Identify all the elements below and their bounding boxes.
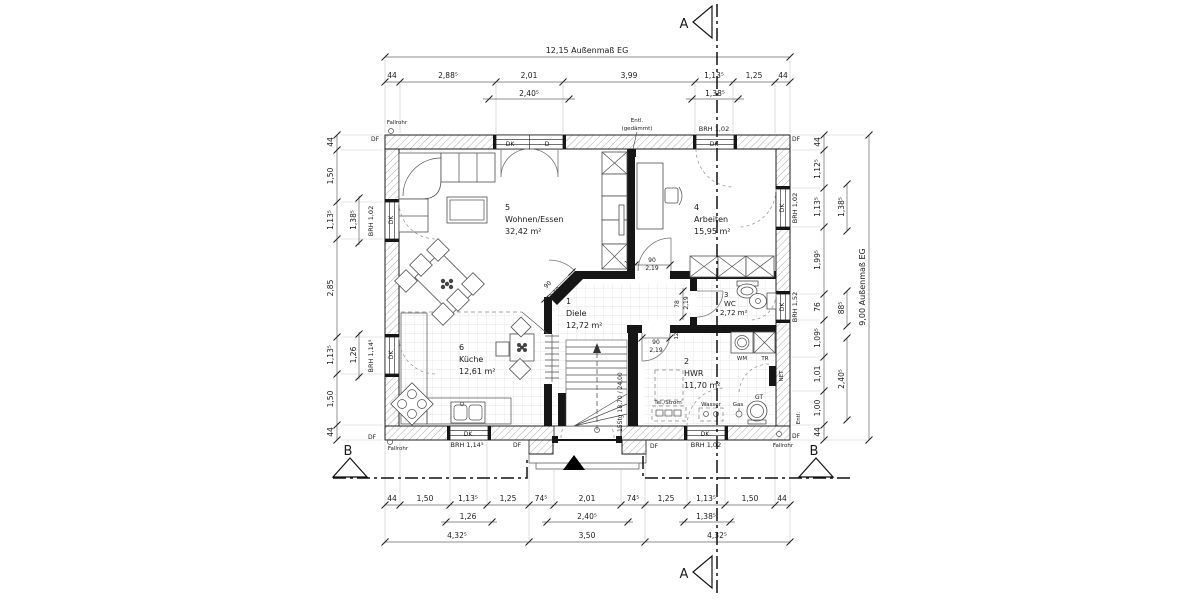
vent-box — [629, 149, 636, 157]
dim-label: 2,01 — [579, 494, 596, 503]
svg-text:5: 5 — [505, 203, 510, 212]
dim-right-overall: 9,00 Außenmaß EG — [858, 248, 867, 325]
office-shelf — [690, 256, 774, 277]
dk-label: DK — [464, 431, 474, 438]
svg-text:12,61 m²: 12,61 m² — [459, 367, 495, 376]
d-label: D — [545, 141, 550, 148]
section-marker-a-bottom — [693, 556, 712, 588]
wall-thickness: 12⁵ — [673, 330, 680, 339]
section-letter-b-left: B — [344, 444, 353, 459]
df-label: DF — [792, 136, 801, 143]
door-width: 90 — [652, 339, 660, 346]
section-letter-a-bottom: A — [680, 567, 689, 582]
dim-label: 1,25 — [500, 494, 517, 503]
dim-label: 44 — [778, 71, 788, 80]
door-width: 90 — [648, 257, 656, 264]
svg-text:6: 6 — [459, 343, 464, 352]
dim-label: 1,25 — [658, 494, 675, 503]
brh-label: BRH 1,02 — [791, 193, 799, 223]
stairs: 15Stg 18,70 / 24,00 — [566, 340, 627, 433]
dim-label: 44 — [777, 494, 787, 503]
dim-label: 44 — [387, 71, 397, 80]
svg-text:HWR: HWR — [684, 369, 704, 378]
terrace-door — [493, 135, 566, 149]
dim-label: 2,85 — [326, 279, 335, 296]
dk-label: DK — [779, 203, 786, 213]
section-letter-b-right: B — [810, 444, 819, 459]
tr-label: TR — [760, 356, 768, 362]
door-height: 2,19 — [649, 347, 663, 354]
dim-label: 1,13⁵ — [696, 494, 716, 503]
stair-label: 15Stg 18,70 / 24,00 — [617, 372, 624, 432]
door-height: 2,19 — [645, 265, 659, 272]
tv — [619, 205, 624, 235]
kitchen-sink — [451, 402, 485, 423]
wc-toilet — [750, 293, 777, 309]
brh-label: BRH 1,02 — [699, 125, 729, 133]
brh-label: BRH 1,14⁵ — [450, 441, 483, 449]
svg-text:Wohnen/Essen: Wohnen/Essen — [505, 215, 564, 224]
wm-label: WM — [737, 356, 747, 362]
tel-strom-label: Tel./Strom — [653, 400, 681, 406]
section-marker-b-left — [333, 458, 367, 477]
dim-label: 1,38⁵ — [837, 197, 846, 217]
dim-label: 1,26 — [460, 512, 477, 521]
dim-label: 2,88⁵ — [438, 71, 458, 80]
svg-text:15,95 m²: 15,95 m² — [694, 227, 730, 236]
dim-label: 2,40⁵ — [837, 369, 846, 389]
dim-label: 3,99 — [621, 71, 638, 80]
tv-sideboard — [602, 152, 627, 269]
dim-label: 44 — [387, 494, 397, 503]
dim-label: 2,40⁵ — [577, 512, 597, 521]
dim-label: 1,12⁵ — [813, 159, 822, 179]
fallrohr-symbol — [389, 129, 394, 134]
dk-label: DK — [506, 141, 516, 148]
svg-text:WC: WC — [724, 300, 736, 308]
gt-label: GT — [755, 394, 763, 401]
net-label: NET — [779, 370, 785, 382]
dim-label: 1,38⁵ — [349, 210, 358, 230]
dim-label: 1,25 — [746, 71, 763, 80]
dim-label: 1,26 — [349, 346, 358, 363]
room-label-arbeiten: 4Arbeiten15,95 m² — [694, 203, 730, 236]
df-label: DF — [371, 136, 380, 143]
fallrohr-label: Fallrohr — [388, 446, 409, 452]
door-width: 90 — [543, 280, 553, 290]
dim-label: 88⁵ — [837, 302, 846, 315]
dim-label: 76 — [813, 302, 822, 312]
door-width: 78 — [674, 300, 681, 308]
svg-text:32,42 m²: 32,42 m² — [505, 227, 541, 236]
dim-label: 1,13⁵ — [704, 71, 724, 80]
svg-text:2: 2 — [684, 357, 689, 366]
washing-machine — [731, 332, 753, 353]
entl-label: Entl. — [796, 412, 802, 425]
dk-label: DK — [388, 350, 395, 360]
dk-label: DK — [701, 431, 711, 438]
brh-label: BRH 1,14⁵ — [367, 339, 375, 372]
df-label: DF — [792, 433, 801, 440]
dk-label: DK — [710, 141, 720, 148]
svg-text:12,72 m²: 12,72 m² — [566, 321, 602, 330]
dim-label: 1,50 — [742, 494, 759, 503]
sofa-top — [441, 153, 495, 182]
dim-label: 4,32⁵ — [447, 531, 467, 540]
svg-text:1: 1 — [566, 297, 571, 306]
dim-label: 1,50 — [417, 494, 434, 503]
dim-label: 44 — [326, 427, 335, 437]
section-marker-b-right — [799, 458, 833, 477]
entl-label: Entl. — [631, 118, 644, 124]
brh-label: BRH 1,02 — [367, 206, 375, 236]
sofa-left — [399, 199, 428, 232]
entl-insulated-label: (gedämmt) — [622, 126, 653, 132]
sofa-corner — [399, 153, 441, 199]
dim-label: 1,13⁵ — [813, 197, 822, 217]
dk-label: DK — [779, 302, 786, 312]
wasser-label: Wasser — [701, 402, 722, 408]
net-board — [769, 366, 776, 386]
dim-label: 74⁵ — [535, 494, 548, 503]
desk — [637, 163, 663, 229]
dim-label: 44 — [813, 137, 822, 147]
dim-label: 1,99⁵ — [813, 250, 822, 270]
brh-label: BRH 1,52 — [791, 292, 799, 322]
dim-label: 2,40⁵ — [519, 89, 539, 98]
floorplan-drawing: 12,15 Außenmaß EG 44 2,88⁵ 2,01 3,99 1,1… — [0, 0, 1200, 600]
section-letter-a-top: A — [680, 17, 689, 32]
fallrohr-label: Fallrohr — [387, 120, 408, 126]
gas-label: Gas — [733, 402, 744, 408]
section-marker-a-top — [693, 6, 712, 38]
dryer — [754, 332, 775, 353]
dim-label: 2,01 — [521, 71, 538, 80]
df-label: DF — [513, 442, 522, 449]
svg-text:11,70 m²: 11,70 m² — [684, 381, 720, 390]
dk-label: DK — [388, 215, 395, 225]
room-label-wohnen: 5Wohnen/Essen32,42 m² — [505, 203, 564, 236]
door-height: 2,19 — [683, 296, 690, 310]
entrance-marker — [563, 455, 585, 470]
dim-label: 1,00 — [813, 399, 822, 416]
svg-text:Diele: Diele — [566, 309, 587, 318]
dim-label: 1,01 — [813, 365, 822, 382]
brh-label: BRH 1,02 — [691, 441, 721, 449]
svg-text:Küche: Küche — [459, 355, 483, 364]
df-label: DF — [368, 434, 377, 441]
dim-label: 1,50 — [326, 167, 335, 184]
dim-label: 3,50 — [579, 531, 596, 540]
dim-label: 1,13⁵ — [326, 210, 335, 230]
dim-top-overall: 12,15 Außenmaß EG — [546, 46, 629, 55]
dim-label: 44 — [813, 427, 822, 437]
dim-label: 1,09⁵ — [813, 328, 822, 348]
svg-text:3: 3 — [724, 291, 728, 299]
df-label: DF — [650, 443, 659, 450]
dim-label: 1,38⁵ — [696, 512, 716, 521]
desk-chair — [665, 188, 678, 203]
fallrohr-label: Fallrohr — [773, 443, 794, 449]
svg-text:Arbeiten: Arbeiten — [694, 215, 728, 224]
coffee-table — [447, 197, 487, 223]
dim-label: 1,13⁵ — [458, 494, 478, 503]
dim-label: 74⁵ — [627, 494, 640, 503]
dim-label: 1,50 — [326, 390, 335, 407]
svg-text:2,72 m²: 2,72 m² — [720, 309, 748, 317]
floorplan-canvas: 12,15 Außenmaß EG 44 2,88⁵ 2,01 3,99 1,1… — [0, 0, 1200, 600]
dim-label: 1,38⁵ — [705, 89, 725, 98]
dim-label: 1,13⁵ — [326, 345, 335, 365]
svg-text:4: 4 — [694, 203, 699, 212]
dim-label: 44 — [326, 137, 335, 147]
